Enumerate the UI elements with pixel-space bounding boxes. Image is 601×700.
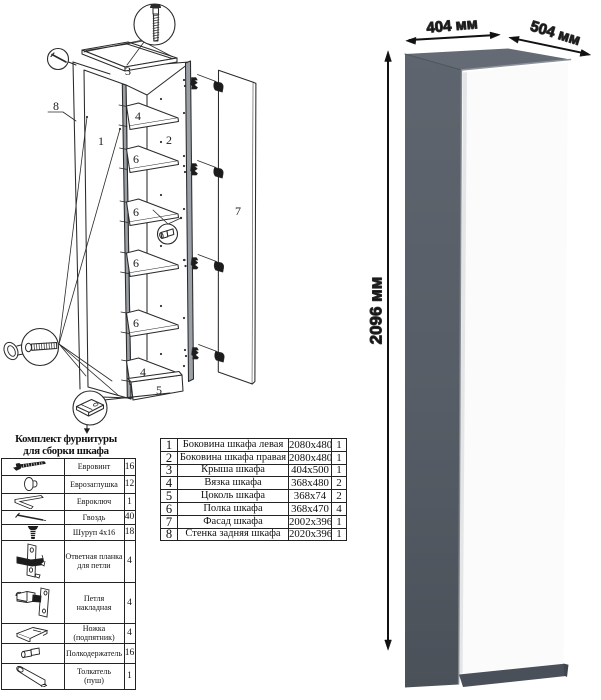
svg-text:4: 4 [135, 109, 141, 123]
svg-text:2: 2 [166, 133, 172, 147]
svg-text:6: 6 [133, 152, 139, 166]
svg-text:6: 6 [133, 316, 139, 330]
svg-text:8: 8 [53, 99, 59, 113]
svg-text:5: 5 [156, 383, 162, 397]
svg-text:6: 6 [133, 205, 139, 219]
svg-text:404 мм: 404 мм [426, 15, 479, 36]
svg-text:7: 7 [235, 204, 241, 218]
svg-text:1: 1 [98, 134, 104, 148]
svg-text:2096 мм: 2096 мм [367, 277, 386, 345]
svg-text:3: 3 [125, 64, 131, 78]
svg-text:4: 4 [140, 365, 146, 379]
svg-text:504 мм: 504 мм [528, 18, 582, 49]
svg-text:6: 6 [133, 256, 139, 270]
